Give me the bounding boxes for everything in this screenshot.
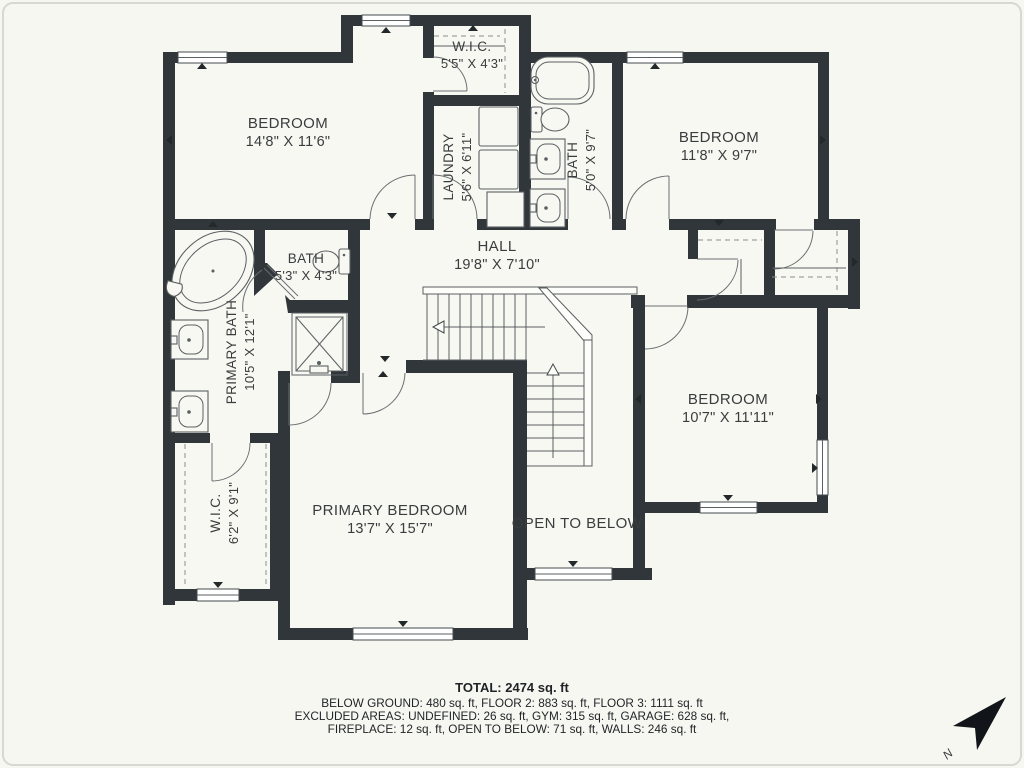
window xyxy=(817,440,828,495)
room-name: BATH xyxy=(288,251,325,266)
washer-icon xyxy=(479,107,518,146)
room-dims: 5'5" X 4'3" xyxy=(441,56,503,71)
stair-rail xyxy=(423,287,637,294)
room-name: HALL xyxy=(477,238,516,255)
window xyxy=(700,502,757,513)
room-name: PRIMARY BATH xyxy=(224,300,239,405)
window xyxy=(362,15,410,26)
sink-icon xyxy=(530,139,565,179)
room-dims: 5'3" X 4'3" xyxy=(275,268,337,283)
room-name: PRIMARY BEDROOM xyxy=(312,502,467,519)
room-dims: 10'5" X 12'1" xyxy=(242,313,257,390)
vanity-sink-icon xyxy=(171,391,208,432)
room-name: BEDROOM xyxy=(679,129,759,146)
room-name: W.I.C. xyxy=(452,39,491,54)
room-dims: 11'8" X 9'7" xyxy=(681,148,757,164)
dryer-icon xyxy=(479,150,518,189)
sink-icon xyxy=(530,189,565,227)
window xyxy=(197,589,239,601)
room-name: BEDROOM xyxy=(688,391,768,408)
summary-excluded-2: FIREPLACE: 12 sq. ft, OPEN TO BELOW: 71 … xyxy=(328,722,697,736)
room-dims: 19'8" X 7'10" xyxy=(454,257,540,273)
floor-plan-canvas: BEDROOM 14'8" X 11'6" W.I.C. 5'5" X 4'3"… xyxy=(0,0,1024,768)
room-name: BEDROOM xyxy=(248,115,328,132)
window xyxy=(178,52,227,63)
toilet-icon xyxy=(531,107,569,132)
room-name: W.I.C. xyxy=(208,493,223,532)
room-dims: 13'7" X 15'7" xyxy=(347,521,433,537)
summary-floors: BELOW GROUND: 480 sq. ft, FLOOR 2: 883 s… xyxy=(321,696,703,710)
laundry-counter xyxy=(487,192,524,227)
window xyxy=(535,568,612,580)
summary-total: TOTAL: 2474 sq. ft xyxy=(455,680,569,695)
vanity-sink-icon xyxy=(171,320,208,359)
stair-rail-lower xyxy=(584,340,592,466)
floor-plan-page: BEDROOM 14'8" X 11'6" W.I.C. 5'5" X 4'3"… xyxy=(0,0,1024,768)
room-label-open-below: OPEN TO BELOW xyxy=(512,515,643,532)
room-dims: 5'6" X 6'11" xyxy=(459,132,474,201)
bathtub-icon xyxy=(531,57,594,104)
room-name: BATH xyxy=(565,142,580,179)
room-name: LAUNDRY xyxy=(441,133,456,200)
room-dims: 10'7" X 11'11" xyxy=(682,410,774,426)
room-dims: 14'8" X 11'6" xyxy=(246,134,331,150)
room-name: OPEN TO BELOW xyxy=(512,515,643,532)
room-dims: 5'0" X 9'7" xyxy=(583,129,598,191)
summary-excluded-1: EXCLUDED AREAS: UNDEFINED: 26 sq. ft, GY… xyxy=(295,709,730,723)
window xyxy=(627,52,683,63)
room-dims: 6'2" X 9'1" xyxy=(226,482,241,544)
window xyxy=(353,628,453,640)
